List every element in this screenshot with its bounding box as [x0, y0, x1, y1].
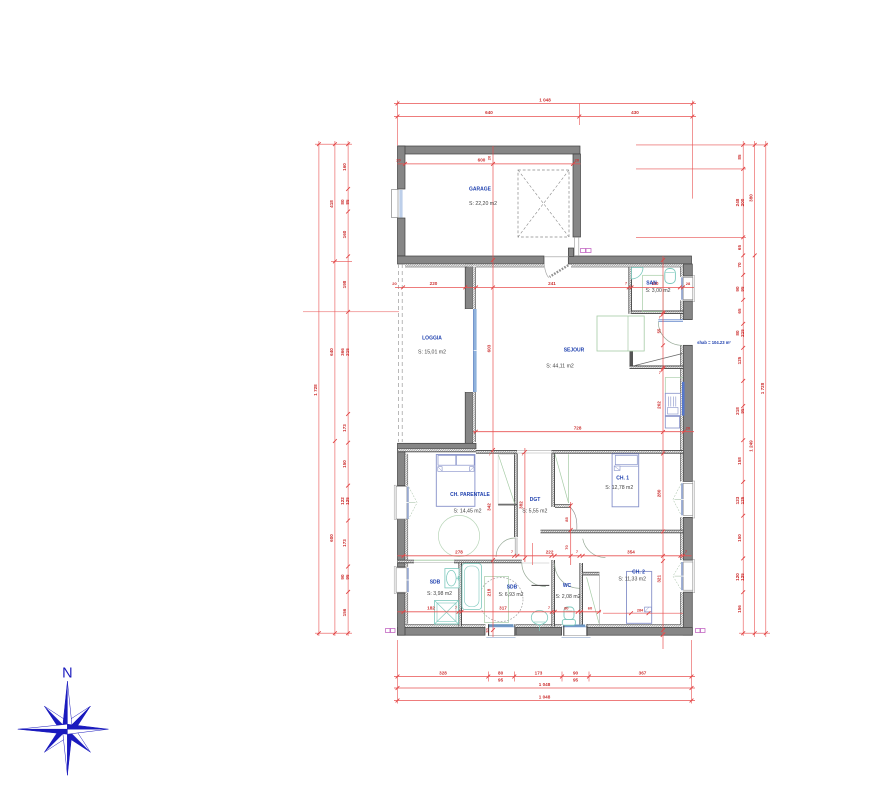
svg-text:220: 220 — [430, 281, 438, 286]
svg-text:95: 95 — [573, 677, 579, 682]
svg-text:S: 44,11 m2: S: 44,11 m2 — [546, 363, 574, 369]
svg-text:342: 342 — [487, 503, 492, 511]
svg-text:DGT: DGT — [530, 497, 541, 503]
svg-text:95: 95 — [345, 574, 350, 580]
svg-text:7: 7 — [511, 550, 513, 554]
svg-text:65: 65 — [737, 245, 742, 251]
svg-text:28: 28 — [686, 281, 691, 286]
svg-text:SDB: SDB — [430, 579, 441, 585]
svg-text:80: 80 — [498, 670, 504, 675]
svg-text:S: 3,00 m2: S: 3,00 m2 — [645, 288, 670, 294]
svg-text:20: 20 — [396, 158, 401, 163]
svg-text:80: 80 — [564, 606, 569, 611]
svg-text:380: 380 — [749, 194, 754, 202]
svg-text:640: 640 — [485, 110, 493, 115]
svg-text:1 048: 1 048 — [539, 98, 551, 103]
svg-text:N: N — [62, 666, 72, 682]
svg-text:S: 2,08 m2: S: 2,08 m2 — [555, 594, 580, 600]
svg-text:603: 603 — [487, 344, 492, 352]
svg-text:150: 150 — [737, 534, 742, 542]
svg-text:95: 95 — [740, 408, 745, 414]
svg-text:S: 22,20 m2: S: 22,20 m2 — [469, 201, 497, 207]
svg-text:125: 125 — [740, 573, 745, 581]
svg-text:20: 20 — [686, 426, 691, 431]
svg-text:278: 278 — [455, 550, 463, 555]
svg-text:7: 7 — [659, 316, 661, 320]
svg-text:7: 7 — [489, 452, 491, 456]
svg-text:90: 90 — [573, 670, 579, 675]
svg-text:S: 11,33 m2: S: 11,33 m2 — [618, 576, 646, 582]
svg-text:85: 85 — [564, 517, 569, 522]
svg-text:156: 156 — [342, 608, 347, 616]
svg-text:222: 222 — [546, 550, 554, 555]
svg-text:367: 367 — [639, 670, 647, 675]
svg-text:7: 7 — [521, 452, 523, 456]
svg-text:20: 20 — [392, 281, 397, 286]
svg-text:728: 728 — [574, 426, 582, 431]
svg-text:shab = 104.23 m²: shab = 104.23 m² — [697, 340, 731, 345]
svg-text:7: 7 — [576, 550, 578, 554]
svg-text:215: 215 — [740, 329, 745, 337]
svg-text:150: 150 — [342, 460, 347, 468]
svg-text:CH. 2: CH. 2 — [632, 570, 645, 576]
svg-text:173: 173 — [535, 670, 543, 675]
svg-text:262: 262 — [657, 401, 662, 409]
svg-text:95: 95 — [740, 286, 745, 292]
svg-text:S: 12,78 m2: S: 12,78 m2 — [605, 485, 633, 491]
svg-text:1 048: 1 048 — [539, 682, 551, 687]
svg-text:125: 125 — [737, 356, 742, 364]
svg-text:S: 15,01 m2: S: 15,01 m2 — [418, 349, 446, 355]
svg-text:70: 70 — [564, 545, 569, 550]
svg-text:7: 7 — [659, 371, 661, 375]
svg-text:WC: WC — [563, 583, 572, 589]
svg-text:GARAGE: GARAGE — [469, 186, 492, 192]
svg-text:1 249: 1 249 — [749, 440, 754, 452]
svg-text:55: 55 — [657, 328, 662, 333]
svg-text:LOGGIA: LOGGIA — [422, 335, 442, 341]
svg-text:198: 198 — [342, 280, 347, 288]
svg-text:SEJOUR: SEJOUR — [564, 347, 585, 353]
svg-text:7: 7 — [685, 550, 687, 554]
svg-text:1 048: 1 048 — [539, 694, 551, 699]
svg-text:156: 156 — [737, 605, 742, 613]
svg-text:317: 317 — [499, 606, 507, 611]
svg-text:20: 20 — [487, 155, 492, 160]
svg-text:284: 284 — [637, 608, 644, 612]
svg-text:S: 14,45 m2: S: 14,45 m2 — [454, 508, 482, 514]
svg-text:200: 200 — [740, 198, 745, 206]
svg-text:95: 95 — [498, 677, 504, 682]
svg-text:85: 85 — [737, 154, 742, 160]
svg-text:173: 173 — [342, 539, 347, 547]
svg-text:125: 125 — [345, 497, 350, 505]
svg-text:430: 430 — [631, 110, 639, 115]
svg-text:7: 7 — [455, 606, 457, 610]
svg-text:418: 418 — [329, 200, 334, 208]
svg-text:158: 158 — [737, 457, 742, 465]
svg-text:S: 3,98 m2: S: 3,98 m2 — [427, 591, 452, 597]
svg-text:321: 321 — [657, 575, 662, 583]
svg-text:7: 7 — [548, 606, 550, 610]
svg-text:7: 7 — [625, 282, 627, 286]
svg-text:SDB: SDB — [507, 584, 518, 590]
svg-text:60: 60 — [588, 606, 593, 611]
svg-text:173: 173 — [342, 424, 347, 432]
svg-text:85: 85 — [345, 199, 350, 205]
svg-text:70: 70 — [737, 262, 742, 268]
svg-text:160: 160 — [342, 163, 347, 171]
svg-text:S: 6,93 m2: S: 6,93 m2 — [498, 592, 523, 598]
svg-text:640: 640 — [329, 348, 334, 356]
svg-text:328: 328 — [439, 670, 447, 675]
svg-text:1 728: 1 728 — [313, 384, 318, 396]
svg-text:S: 5,55 m2: S: 5,55 m2 — [522, 508, 547, 514]
svg-text:20: 20 — [575, 158, 580, 163]
svg-text:1 728: 1 728 — [760, 382, 765, 394]
svg-text:125: 125 — [740, 496, 745, 504]
svg-text:600: 600 — [478, 158, 486, 163]
svg-text:160: 160 — [342, 230, 347, 238]
svg-text:241: 241 — [548, 281, 556, 286]
svg-text:280: 280 — [657, 489, 662, 497]
svg-text:65: 65 — [737, 308, 742, 314]
svg-text:SAN: SAN — [646, 281, 657, 287]
svg-text:354: 354 — [627, 550, 635, 555]
svg-text:CH. 1: CH. 1 — [616, 476, 629, 482]
svg-text:CH. PARENTALE: CH. PARENTALE — [450, 492, 490, 498]
svg-text:20: 20 — [484, 628, 489, 633]
svg-text:600: 600 — [329, 534, 334, 542]
svg-text:215: 215 — [345, 348, 350, 356]
svg-text:182: 182 — [427, 606, 435, 611]
svg-text:218: 218 — [487, 588, 492, 596]
